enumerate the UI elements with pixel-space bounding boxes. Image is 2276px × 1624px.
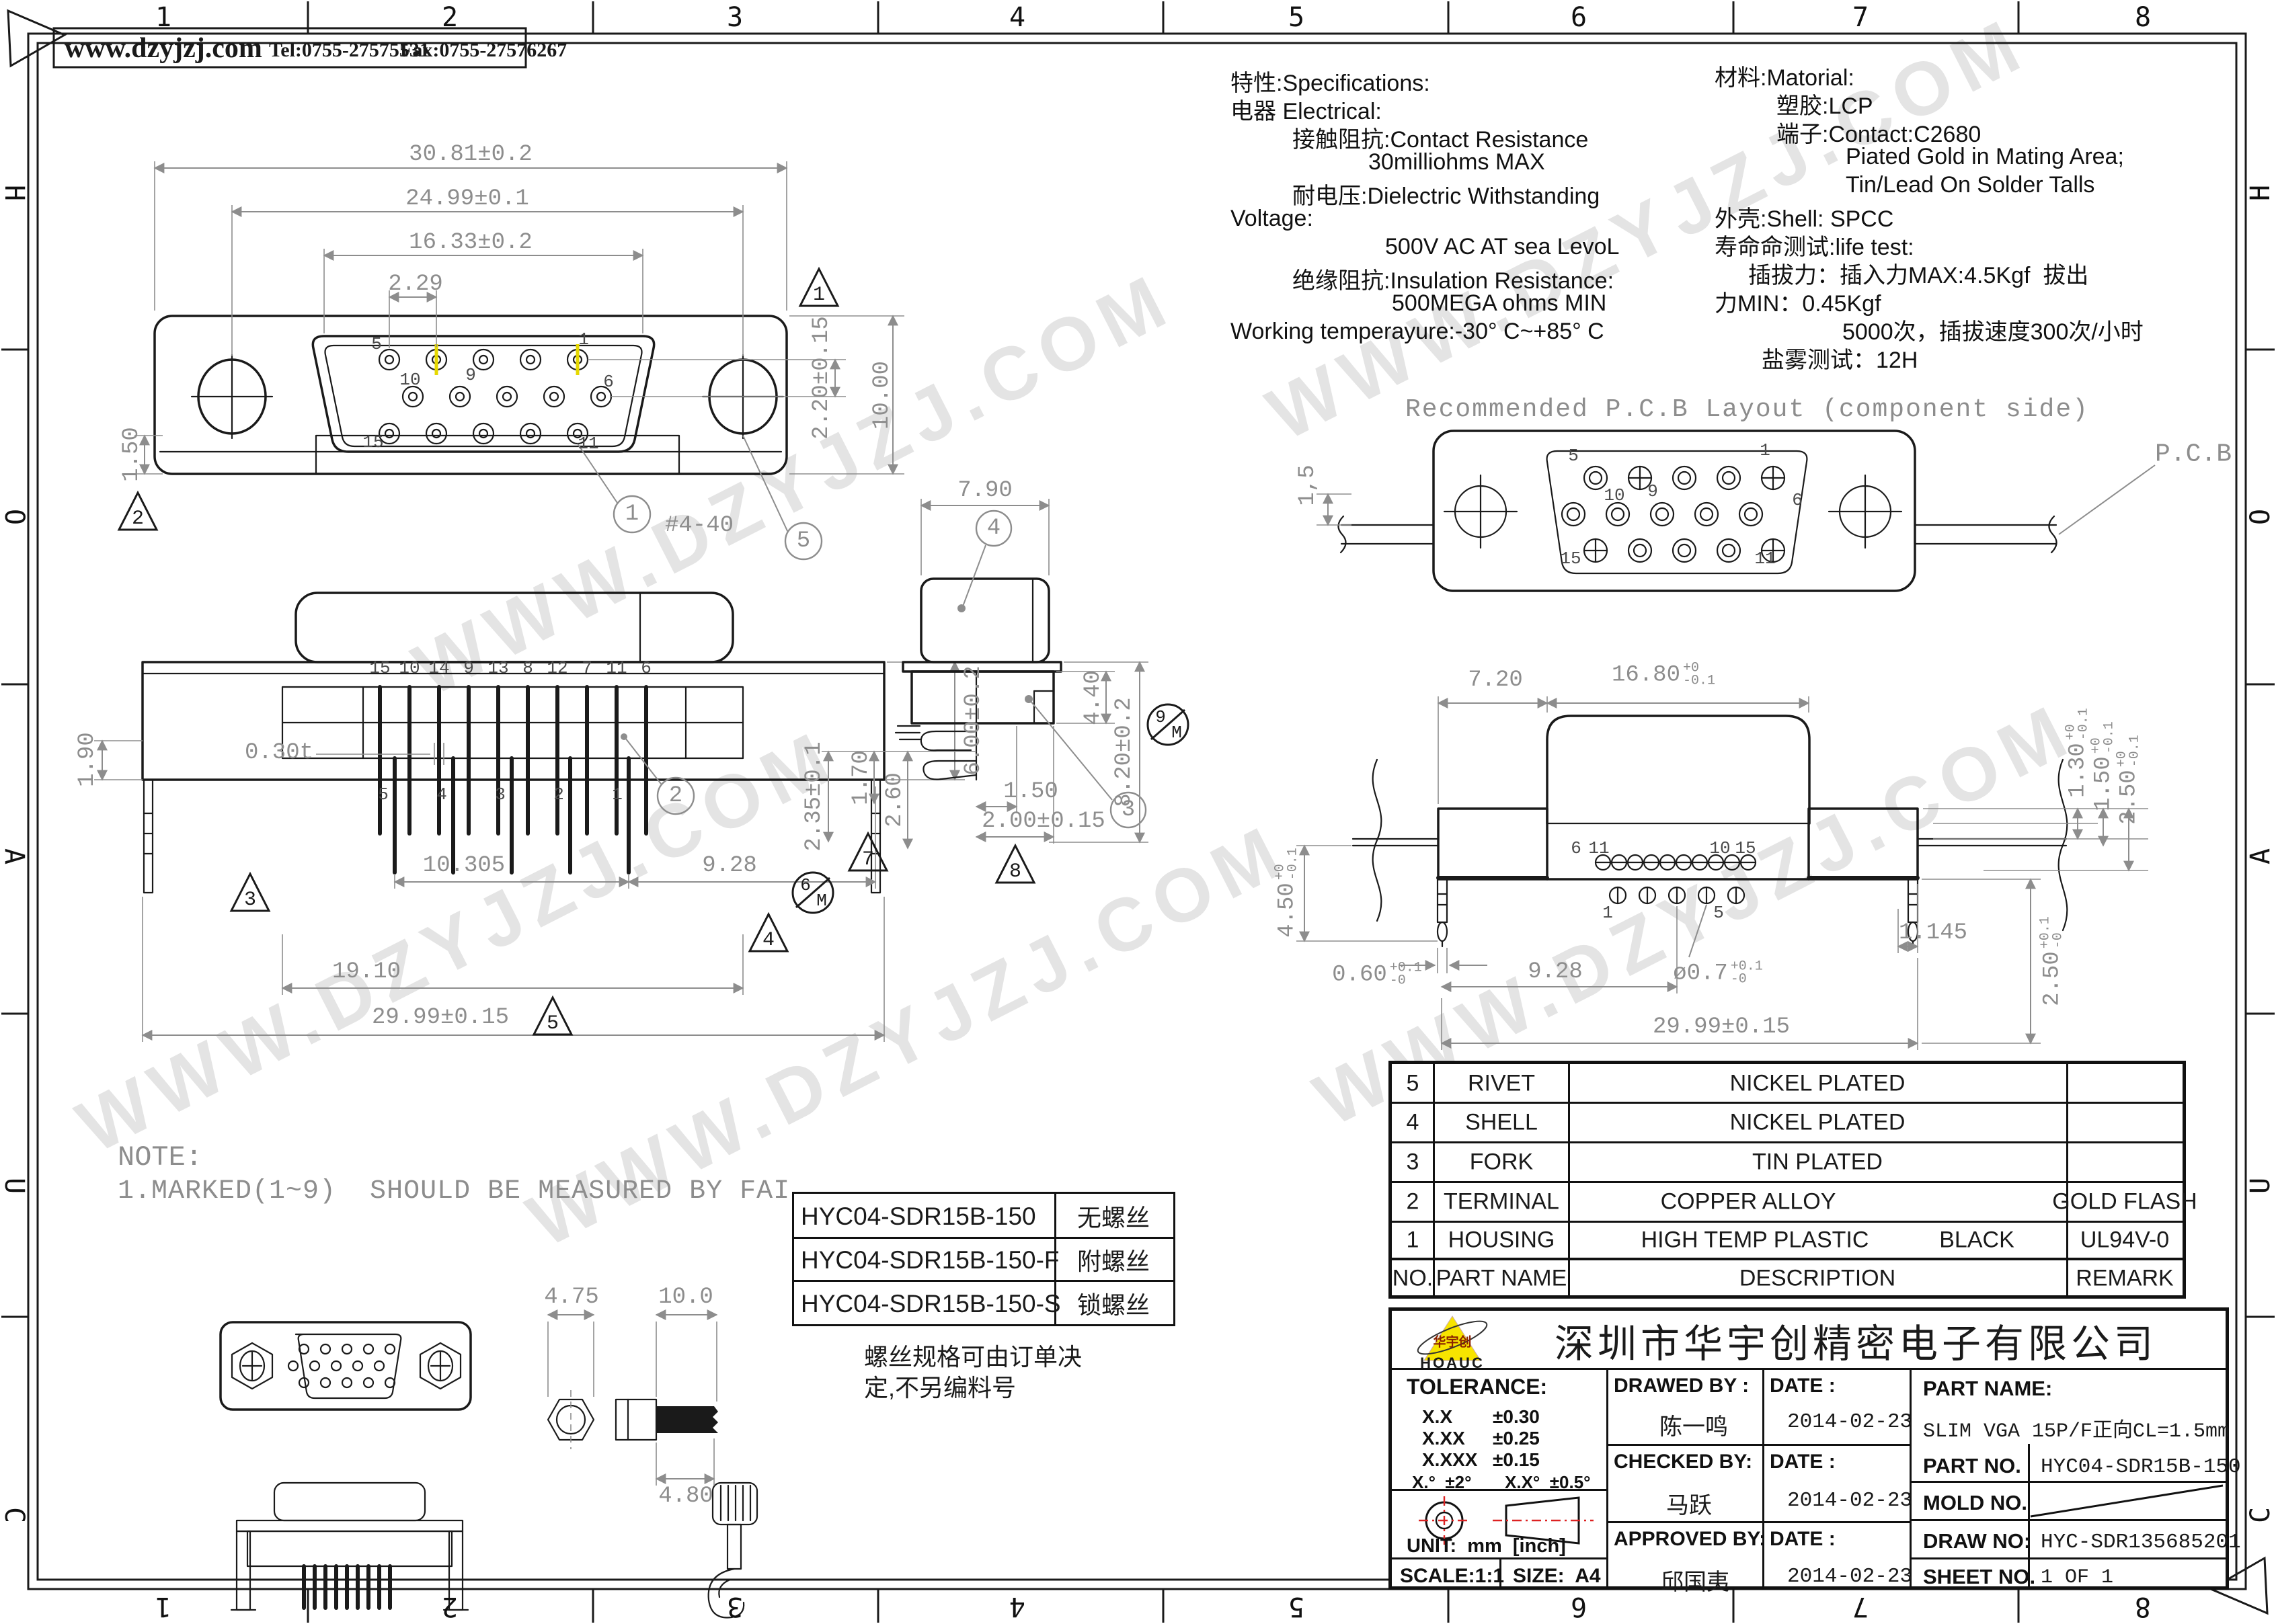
pin-label: 15 — [1735, 838, 1756, 858]
pcb-label: P.C.B — [2155, 440, 2232, 469]
triangle-num: 8 — [1009, 860, 1021, 883]
dim-29-99b: 29.99±0.15 — [1653, 1014, 1790, 1040]
pin-label: 1 — [612, 784, 623, 805]
variant-pn: HYC04-SDR15B-150 — [801, 1203, 1036, 1231]
part-name-label: PART NAME: — [1923, 1377, 2052, 1401]
pin-label: 11 — [1588, 838, 1609, 858]
zone-row: C — [2245, 1507, 2276, 1523]
pin-label: 3 — [495, 784, 506, 805]
balloon-num: 5 — [797, 528, 810, 554]
tol-lower: -0 — [1731, 973, 1763, 986]
balloon-9: 9 — [1155, 707, 1166, 727]
variant-pn: HYC04-SDR15B-150-S — [801, 1290, 1061, 1318]
bom-remark: GOLD FLASH — [2052, 1189, 2197, 1215]
company-fax: Fax:0755-27576267 — [400, 39, 567, 62]
spec-line: 500V AC AT sea LevoL — [1385, 234, 1619, 260]
pin-label: 10 — [399, 370, 420, 390]
pin-label: 10 — [399, 658, 420, 678]
pin-label: 14 — [428, 658, 449, 678]
dim-9-28: 9.28 — [702, 853, 757, 879]
dim-10-0: 10.0 — [658, 1285, 713, 1310]
dim-value: 2.50 — [2116, 770, 2142, 825]
variant-screw: 无螺丝 — [1077, 1199, 1150, 1233]
dim-2-50b: 2.50+0.1-0 — [2039, 916, 2066, 1006]
mold-no-label: MOLD NO. — [1923, 1491, 2027, 1515]
draw-no-value: HYC-SDR135685201 — [2041, 1531, 2241, 1554]
zone-col: 4 — [1009, 1591, 1025, 1622]
zone-col: 3 — [727, 2, 743, 33]
date-value: 2014-02-23 — [1787, 1565, 1912, 1588]
logo-text: HOAUC — [1420, 1354, 1485, 1372]
date-label: DATE : — [1770, 1451, 1836, 1473]
pin-label: 1 — [1602, 903, 1613, 923]
pin-label: 15 — [369, 658, 390, 678]
dim-10-00: 10.00 — [869, 361, 895, 430]
part-no-label: PART NO. — [1923, 1454, 2021, 1478]
dim-2-60: 2.60 — [882, 772, 908, 827]
variant-screw: 锁螺丝 — [1077, 1286, 1150, 1321]
assembly-views — [221, 1315, 757, 1617]
variant-table: HYC04-SDR15B-150 无螺丝 HYC04-SDR15B-150-F … — [792, 1192, 1175, 1326]
front-view — [119, 161, 904, 559]
triangle-num: 1 — [813, 284, 825, 307]
dim-0-7: ø0.7+0.1-0 — [1673, 961, 1763, 987]
dim-10-305: 10.305 — [423, 853, 505, 879]
balloon-9-m: M — [1171, 723, 1182, 743]
spec-line: 耐电压:Dielectric Withstanding — [1292, 177, 1600, 210]
pin-label: 6 — [603, 372, 614, 392]
date-label: DATE : — [1770, 1375, 1836, 1397]
approved-by-name: 邱国夷 — [1661, 1564, 1729, 1596]
pin-label: 13 — [487, 658, 508, 678]
company-name: 深圳市华宇创精密电子有限公司 — [1555, 1312, 2157, 1369]
balloon-6-m: M — [816, 891, 827, 911]
variant-screw: 附螺丝 — [1077, 1242, 1150, 1277]
bom-desc: NICKEL PLATED — [1730, 1071, 1906, 1097]
screw-note-line1: 螺丝规格可由订单决 — [864, 1338, 1082, 1373]
dim-2-20: 2.20±0.15 — [809, 316, 834, 440]
dim-29-99: 29.99±0.15 — [372, 1005, 509, 1030]
zone-col: 6 — [1571, 2, 1587, 33]
zone-col: 7 — [1852, 1591, 1869, 1622]
pin-label: 5 — [378, 784, 389, 805]
variant-row: HYC04-SDR15B-150-F 附螺丝 — [794, 1239, 1173, 1282]
zone-col: 5 — [1288, 2, 1304, 33]
balloon-num: 3 — [1122, 797, 1135, 823]
pin-label: 8 — [522, 658, 533, 678]
pin-label: 11 — [578, 434, 598, 454]
dim-16-80: 16.80+0-0.1 — [1612, 662, 1715, 688]
zone-row: H — [2245, 185, 2276, 201]
pin-label: 1 — [578, 329, 589, 350]
zone-col: 2 — [442, 1591, 458, 1622]
balloon-num: 1 — [625, 501, 639, 527]
zone-col: 5 — [1288, 1591, 1304, 1622]
dim-6-00: 6.00±0.2 — [961, 665, 986, 775]
zone-col: 1 — [155, 1591, 171, 1622]
variant-row: HYC04-SDR15B-150 无螺丝 — [794, 1194, 1173, 1239]
dim-1-30: 1.30+0-0.1 — [2065, 708, 2091, 798]
zone-col: 1 — [155, 2, 171, 33]
pin-label: 5 — [1713, 903, 1724, 923]
pin-label: 5 — [1568, 446, 1579, 466]
pin-label: 6 — [1571, 838, 1581, 858]
material-line: Piated Gold in Mating Area; — [1846, 144, 2124, 170]
pin-label: 5 — [371, 334, 382, 354]
dim-0-60: 0.60+0.1-0 — [1332, 962, 1422, 988]
tol-row-label: X.X — [1422, 1406, 1452, 1428]
corner-arrow-icon — [8, 11, 65, 66]
tol-lower: -0.1 — [1683, 675, 1715, 688]
bom-no: 3 — [1407, 1149, 1419, 1176]
date-value: 2014-02-23 — [1787, 1489, 1912, 1512]
dim-1-50c: 1.50+0-0.1 — [2090, 721, 2117, 811]
bom-no: 5 — [1407, 1071, 1419, 1097]
zone-row: A — [2245, 848, 2276, 864]
dim-value: 2.50 — [2039, 951, 2065, 1006]
spec-line: 30milliohms MAX — [1368, 149, 1545, 175]
dim-value: 16.80 — [1612, 662, 1680, 688]
drawed-by-label: DRAWED BY : — [1614, 1375, 1749, 1397]
pin-label: 11 — [606, 658, 627, 678]
tolerance-title: TOLERANCE: — [1407, 1375, 1547, 1399]
triangle-num: 3 — [244, 889, 256, 911]
date-label: DATE : — [1770, 1528, 1836, 1551]
bom-header-remark: REMARK — [2076, 1266, 2173, 1292]
tol-lower: -0.1 — [2103, 721, 2116, 754]
tol-row-label: X.XXX — [1422, 1449, 1477, 1471]
dim-2-00: 2.00±0.15 — [982, 809, 1105, 834]
scale-label: SCALE:1:1 — [1400, 1565, 1504, 1588]
note-line: 1.MARKED(1~9) SHOULD BE MEASURED BY FAI — [118, 1176, 790, 1207]
part-no-value: HYC04-SDR15B-150 — [2041, 1455, 2241, 1479]
balloon-num: 4 — [987, 516, 1000, 541]
tol-lower: -0.1 — [2078, 708, 2090, 740]
bom-table: 5 RIVET NICKEL PLATED 4 SHELL NICKEL PLA… — [1388, 1061, 2186, 1299]
tol-row-value: ±0.25 — [1493, 1428, 1540, 1449]
pin-label: 10 — [1709, 838, 1730, 858]
pin-label: 2 — [553, 784, 564, 805]
pin-label: 15 — [1560, 549, 1581, 569]
tol-row-value: ±0.15 — [1493, 1449, 1540, 1471]
pin-label: 11 — [1754, 549, 1775, 569]
triangle-num: 2 — [132, 507, 144, 530]
zone-col: 2 — [442, 2, 458, 33]
dim-1-70: 1.70 — [849, 750, 874, 805]
pin-label: 6 — [1792, 490, 1803, 510]
dim-7-90: 7.90 — [957, 478, 1013, 503]
triangle-num: 7 — [862, 848, 874, 871]
dim-1-50: 1.50 — [119, 427, 145, 482]
tol-angle1: X.° ±2° — [1412, 1472, 1472, 1493]
tol-lower: -0.1 — [1287, 848, 1300, 880]
dim-4-50: 4.50+0-0.1 — [1274, 848, 1300, 938]
zone-col: 8 — [2135, 2, 2151, 33]
bom-desc-color: BLACK — [1939, 1227, 2014, 1254]
pin-label: 1 — [1760, 440, 1770, 460]
bom-desc: COPPER ALLOY — [1661, 1189, 1836, 1215]
zone-col: 4 — [1009, 2, 1025, 33]
bom-no: 2 — [1407, 1189, 1419, 1215]
balloon-6: 6 — [800, 875, 811, 895]
material-line: 盐雾测试：12H — [1762, 341, 1918, 374]
thread-label: #4-40 — [665, 513, 734, 538]
zone-col: 3 — [727, 1591, 743, 1622]
zone-row: A — [0, 848, 30, 864]
screw-note-line2: 定,不另编料号 — [864, 1369, 1016, 1404]
dim-0-30: 0.30t — [245, 740, 313, 766]
dim-value: 1.30 — [2065, 743, 2090, 798]
tol-lower: -0.1 — [2129, 735, 2142, 767]
bom-no: 4 — [1407, 1110, 1419, 1136]
unit-label: UNIT: mm [inch] — [1407, 1535, 1566, 1557]
zone-row: O — [2245, 509, 2276, 525]
drawing-sheet: WWW.DZYJZJ.COM WWW.DZYJZJ.COM WWW.DZYJZJ… — [0, 0, 2276, 1624]
spec-line: 500MEGA ohms MIN — [1392, 290, 1606, 317]
bom-part: SHELL — [1465, 1110, 1538, 1136]
dim-24-99: 24.99±0.1 — [405, 186, 529, 212]
dim-1-50b: 1.50 — [1003, 779, 1058, 805]
dim-4-75: 4.75 — [544, 1285, 599, 1310]
dim-2-35: 2.35±0.1 — [801, 741, 827, 851]
dim-1-145: 1.145 — [1899, 920, 1967, 946]
triangle-num: 5 — [547, 1012, 559, 1035]
solder-view — [1296, 696, 2148, 1050]
pin-label: 4 — [436, 784, 447, 805]
zone-col: 8 — [2135, 1591, 2151, 1622]
triangle-num: 4 — [762, 929, 775, 952]
zone-col: 7 — [1852, 2, 1869, 33]
bom-desc: HIGH TEMP PLASTIC — [1641, 1227, 1869, 1254]
bom-no: 1 — [1407, 1227, 1419, 1254]
dim-7-20: 7.20 — [1468, 667, 1523, 693]
zone-row: C — [0, 1507, 30, 1523]
zone-col: 6 — [1571, 1591, 1587, 1622]
drawed-by-name: 陈一鸣 — [1659, 1408, 1728, 1441]
bom-remark: UL94V-0 — [2080, 1227, 2169, 1254]
spec-line: Voltage: — [1230, 206, 1313, 232]
bom-part: TERMINAL — [1444, 1189, 1559, 1215]
logo-cn-text: 华宇创 — [1433, 1332, 1471, 1350]
balloon-num: 2 — [669, 783, 682, 809]
pin-label: 9 — [463, 658, 474, 678]
title-block: 华宇创 HOAUC 深圳市华宇创精密电子有限公司 TOLERANCE: X.X … — [1388, 1307, 2229, 1590]
sheet-no-label: SHEET NO. — [1923, 1565, 2035, 1589]
checked-by-label: CHECKED BY: — [1614, 1451, 1752, 1473]
bom-part: FORK — [1470, 1149, 1533, 1176]
dim-value: 0.60 — [1332, 962, 1387, 987]
dim-2-50a: 2.50+0-0.1 — [2116, 735, 2142, 825]
size-label: SIZE: A4 — [1513, 1565, 1601, 1588]
bom-part: HOUSING — [1448, 1227, 1555, 1254]
zone-row: O — [0, 509, 30, 525]
pin-label: 7 — [582, 658, 592, 678]
bom-header-no: NO. — [1392, 1266, 1433, 1292]
variant-pn: HYC04-SDR15B-150-F — [801, 1246, 1060, 1274]
bom-header-desc: DESCRIPTION — [1739, 1266, 1895, 1292]
dim-9-28b: 9.28 — [1528, 959, 1583, 985]
draw-no-label: DRAW NO: — [1923, 1529, 2031, 1553]
bom-desc: NICKEL PLATED — [1730, 1110, 1906, 1136]
tol-angle2: X.X° ±0.5° — [1505, 1472, 1591, 1493]
tol-lower: -0 — [1390, 975, 1422, 987]
dim-16-33: 16.33±0.2 — [409, 230, 533, 255]
dim-19-10: 19.10 — [332, 959, 401, 985]
pin-label: 6 — [641, 658, 652, 678]
dim-4-40: 4.40 — [1081, 670, 1106, 725]
bom-header-part: PART NAME — [1436, 1266, 1567, 1292]
dim-4-80: 4.80 — [658, 1484, 713, 1509]
sheet-no-value: 1 OF 1 — [2041, 1566, 2113, 1589]
pin-label: 12 — [547, 658, 567, 678]
dim-30-81: 30.81±0.2 — [409, 142, 533, 167]
note-title: NOTE: — [118, 1141, 202, 1174]
dim-value: 1.50 — [2090, 756, 2116, 811]
dim-value: 4.50 — [1274, 883, 1300, 938]
zone-row: U — [2245, 1178, 2276, 1194]
approved-by-label: APPROVED BY: — [1614, 1528, 1766, 1551]
dim-2-29: 2.29 — [388, 272, 443, 297]
zone-row: H — [0, 185, 30, 201]
date-value: 2014-02-23 — [1787, 1410, 1912, 1434]
mold-no-slash — [2028, 1483, 2226, 1519]
pin-label: 15 — [362, 432, 383, 452]
tol-row-value: ±0.30 — [1493, 1406, 1540, 1428]
part-name-value: SLIM VGA 15P/F正向CL=1.5mm — [1923, 1413, 2230, 1443]
company-website: www.dzyjzj.com — [65, 32, 262, 65]
pcb-layout-view — [1317, 431, 2155, 591]
dim-value: ø0.7 — [1673, 961, 1728, 986]
bom-part: RIVET — [1468, 1071, 1535, 1097]
checked-by-name: 马跃 — [1666, 1487, 1712, 1520]
dim-8-20: 8.20±0.2 — [1111, 697, 1137, 807]
pin-label: 9 — [1647, 481, 1658, 501]
tol-row-label: X.XX — [1422, 1428, 1465, 1449]
dim-1-90: 1.90 — [75, 732, 100, 787]
spec-line: Working temperayure:-30° C~+85° C — [1230, 319, 1604, 345]
pcb-layout-title: Recommended P.C.B Layout (component side… — [1405, 395, 2089, 424]
bom-desc: TIN PLATED — [1752, 1149, 1883, 1176]
pin-label: 9 — [465, 365, 476, 385]
zone-row: U — [0, 1178, 30, 1194]
dim-1-5: 1,5 — [1295, 464, 1321, 505]
material-line: Tin/Lead On Solder Talls — [1846, 172, 2094, 198]
variant-row: HYC04-SDR15B-150-S 锁螺丝 — [794, 1282, 1173, 1324]
pin-label: 10 — [1604, 485, 1624, 505]
tol-lower: -0 — [2052, 916, 2065, 948]
